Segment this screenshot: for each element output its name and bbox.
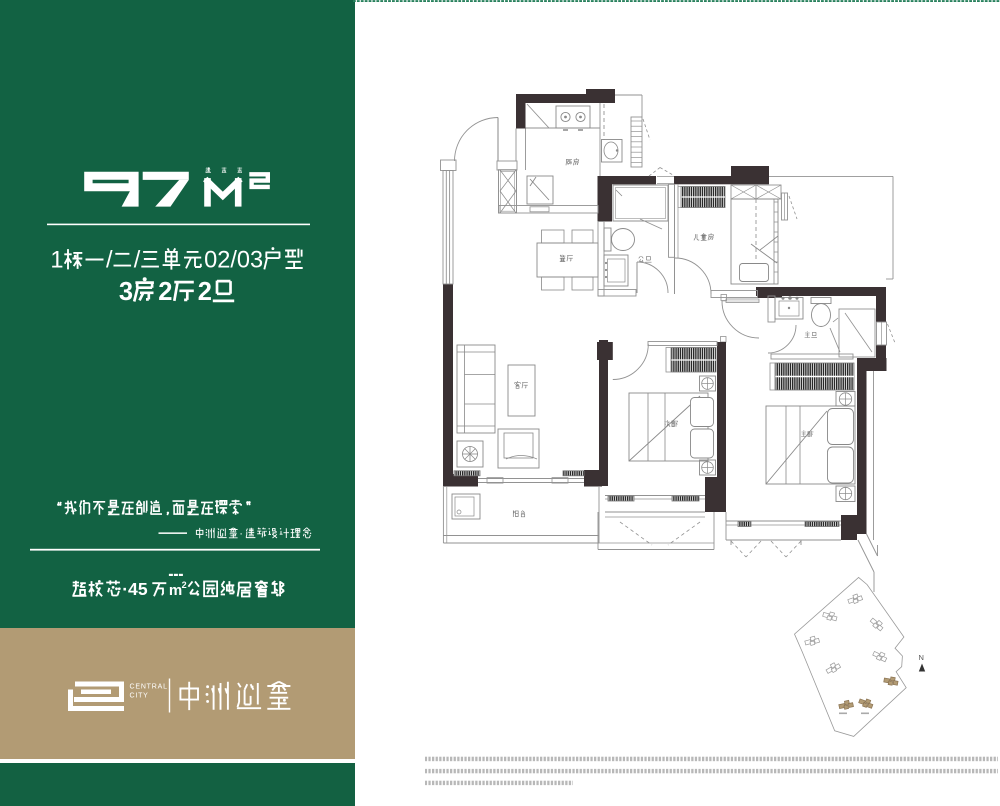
svg-text:N: N bbox=[919, 653, 924, 662]
